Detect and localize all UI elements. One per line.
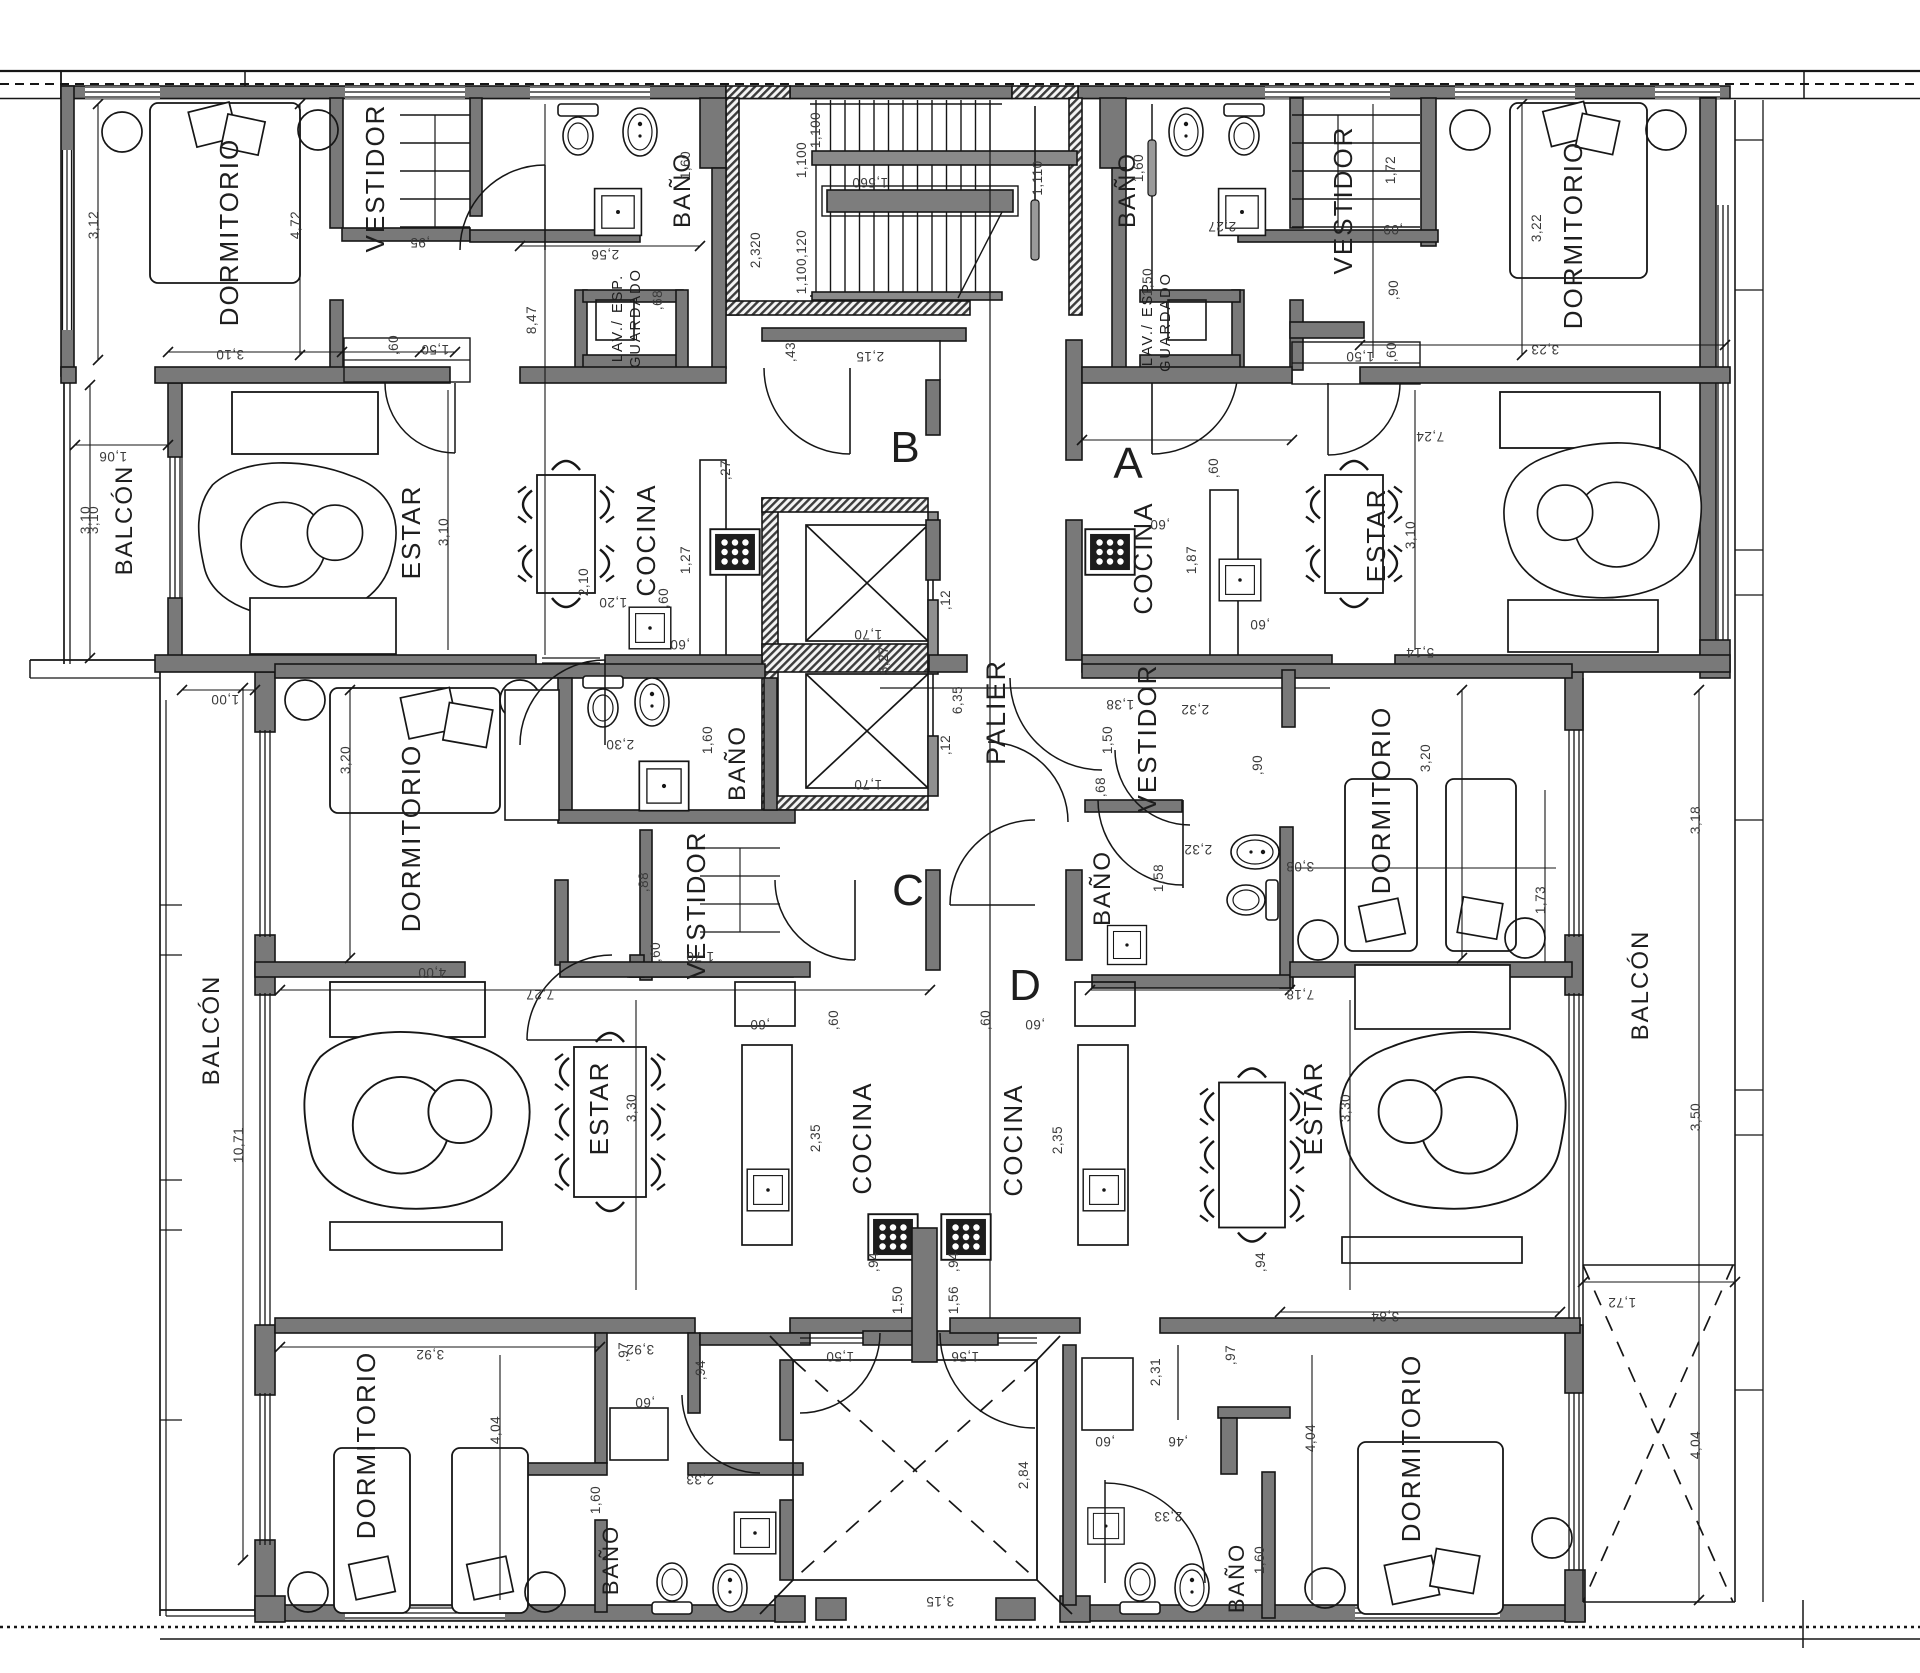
svg-text:,12: ,12 xyxy=(938,590,953,610)
svg-text:BALCÓN: BALCÓN xyxy=(1627,930,1654,1041)
svg-text:VESTIDOR: VESTIDOR xyxy=(1132,664,1162,813)
svg-text:,94: ,94 xyxy=(1253,1252,1268,1272)
svg-text:3,84: 3,84 xyxy=(1371,1309,1399,1324)
svg-text:,94: ,94 xyxy=(946,1252,961,1272)
svg-text:1,20: 1,20 xyxy=(599,595,627,610)
svg-text:1,50: 1,50 xyxy=(421,342,449,357)
svg-text:,97: ,97 xyxy=(616,1342,631,1362)
svg-text:VESTIDOR: VESTIDOR xyxy=(360,104,390,253)
svg-text:,94: ,94 xyxy=(866,1252,881,1272)
svg-text:3,50: 3,50 xyxy=(1688,1103,1703,1131)
svg-text:,60: ,60 xyxy=(1150,517,1170,532)
svg-text:A: A xyxy=(1113,439,1143,488)
svg-text:3,22: 3,22 xyxy=(1529,214,1544,242)
svg-text:ESTAR: ESTAR xyxy=(1298,1061,1328,1156)
svg-text:COCINA: COCINA xyxy=(847,1081,877,1194)
svg-text:,60: ,60 xyxy=(648,942,663,962)
svg-text:,60: ,60 xyxy=(670,637,690,652)
svg-text:1,70: 1,70 xyxy=(854,627,882,642)
svg-text:1,100: 1,100 xyxy=(794,142,809,178)
svg-text:2,30: 2,30 xyxy=(606,737,634,752)
svg-text:COCINA: COCINA xyxy=(998,1083,1028,1196)
svg-text:2,15: 2,15 xyxy=(856,349,884,364)
svg-text:ESTAR: ESTAR xyxy=(584,1061,614,1156)
svg-text:3,10: 3,10 xyxy=(1403,521,1418,549)
svg-text:D: D xyxy=(1009,961,1041,1010)
svg-text:4,04: 4,04 xyxy=(1688,1431,1703,1459)
svg-text:1,73: 1,73 xyxy=(1533,886,1548,914)
svg-text:3,10: 3,10 xyxy=(78,506,93,534)
svg-text:1,60: 1,60 xyxy=(678,151,693,179)
svg-text:,60: ,60 xyxy=(1025,1017,1045,1032)
svg-text:3,30: 3,30 xyxy=(624,1094,639,1122)
svg-text:3,20: 3,20 xyxy=(338,746,353,774)
svg-text:,95: ,95 xyxy=(410,235,430,250)
svg-text:DORMITORIO: DORMITORIO xyxy=(396,744,426,933)
svg-text:,27: ,27 xyxy=(718,460,733,480)
svg-text:LAV./ ESP.: LAV./ ESP. xyxy=(610,274,626,362)
svg-text:1,87: 1,87 xyxy=(1184,546,1199,574)
svg-text:VESTIDOR: VESTIDOR xyxy=(1328,126,1358,275)
svg-text:3,23: 3,23 xyxy=(1531,342,1559,357)
svg-text:,90: ,90 xyxy=(1250,755,1265,775)
svg-text:5,14: 5,14 xyxy=(1406,645,1434,660)
svg-text:6,35: 6,35 xyxy=(950,686,965,714)
svg-text:4,00: 4,00 xyxy=(418,965,446,980)
svg-text:BALCÓN: BALCÓN xyxy=(198,975,225,1086)
svg-text:2,84: 2,84 xyxy=(1016,1461,1031,1489)
svg-text:3,18: 3,18 xyxy=(1688,806,1703,834)
svg-text:1,72: 1,72 xyxy=(1608,1295,1636,1310)
svg-text:8,47: 8,47 xyxy=(524,306,539,334)
svg-text:4,04: 4,04 xyxy=(1303,1424,1318,1452)
svg-text:2,27: 2,27 xyxy=(1208,219,1236,234)
svg-text:,94: ,94 xyxy=(693,1360,708,1380)
svg-text:1,38: 1,38 xyxy=(1106,697,1134,712)
svg-text:1,60: 1,60 xyxy=(588,1486,603,1514)
svg-text:4,72: 4,72 xyxy=(288,211,303,239)
svg-text:,60: ,60 xyxy=(750,1017,770,1032)
svg-text:DORMITORIO: DORMITORIO xyxy=(214,138,244,327)
svg-text:2,33: 2,33 xyxy=(686,1472,714,1487)
svg-text:,60: ,60 xyxy=(656,588,671,608)
svg-text:1,60: 1,60 xyxy=(700,726,715,754)
svg-text:1,72: 1,72 xyxy=(1383,156,1398,184)
svg-text:GUARDADO: GUARDADO xyxy=(1158,272,1174,372)
svg-text:3,15: 3,15 xyxy=(926,1594,954,1609)
svg-text:DORMITORIO: DORMITORIO xyxy=(1366,706,1396,895)
svg-text:2,32: 2,32 xyxy=(1184,842,1212,857)
svg-text:BAÑO: BAÑO xyxy=(1224,1543,1249,1613)
svg-text:1,00: 1,00 xyxy=(211,692,239,707)
svg-text:,68: ,68 xyxy=(1093,777,1108,797)
svg-text:,90: ,90 xyxy=(1386,280,1401,300)
svg-text:B: B xyxy=(890,423,919,472)
svg-text:BAÑO: BAÑO xyxy=(1089,850,1116,926)
svg-text:1,50: 1,50 xyxy=(1346,349,1374,364)
svg-text:1,60: 1,60 xyxy=(1252,1546,1267,1574)
svg-text:,60: ,60 xyxy=(978,1010,993,1030)
svg-text:GUARDADO: GUARDADO xyxy=(628,268,644,368)
svg-text:1,70: 1,70 xyxy=(686,949,714,964)
svg-text:,60: ,60 xyxy=(1384,342,1399,362)
svg-text:3,27: 3,27 xyxy=(876,646,891,674)
svg-text:PALIER: PALIER xyxy=(981,659,1011,765)
svg-text:,60: ,60 xyxy=(635,1395,655,1410)
svg-text:2,31: 2,31 xyxy=(1148,1358,1163,1386)
svg-text:3,10: 3,10 xyxy=(436,518,451,546)
svg-text:1,60: 1,60 xyxy=(1131,154,1146,182)
svg-text:4,04: 4,04 xyxy=(488,1416,503,1444)
svg-text:ESTAR: ESTAR xyxy=(396,485,426,580)
svg-text:1,56: 1,56 xyxy=(946,1286,961,1314)
svg-text:BALCÓN: BALCÓN xyxy=(111,465,138,576)
svg-text:,60: ,60 xyxy=(386,335,401,355)
svg-text:1,70: 1,70 xyxy=(854,777,882,792)
svg-text:DORMITORIO: DORMITORIO xyxy=(1396,1354,1426,1543)
svg-text:,12: ,12 xyxy=(938,735,953,755)
svg-text:ESTAR: ESTAR xyxy=(1361,488,1391,583)
svg-text:,60: ,60 xyxy=(1095,1434,1115,1449)
svg-text:1,110: 1,110 xyxy=(1030,160,1045,195)
svg-text:2,56: 2,56 xyxy=(591,247,619,262)
svg-text:,46: ,46 xyxy=(1168,1434,1188,1449)
svg-text:COCINA: COCINA xyxy=(631,483,661,596)
svg-text:,97: ,97 xyxy=(1223,1345,1238,1365)
svg-text:,43: ,43 xyxy=(783,342,798,362)
svg-text:BAÑO: BAÑO xyxy=(598,1525,623,1595)
svg-text:3,08: 3,08 xyxy=(1286,859,1314,874)
svg-text:,68: ,68 xyxy=(650,290,665,310)
svg-text:3,20: 3,20 xyxy=(1418,744,1433,772)
svg-text:BAÑO: BAÑO xyxy=(724,725,751,801)
svg-text:,88: ,88 xyxy=(636,872,651,892)
svg-text:1,100: 1,100 xyxy=(808,112,823,148)
svg-text:3,12: 3,12 xyxy=(86,211,101,239)
svg-text:,60: ,60 xyxy=(826,1010,841,1030)
svg-text:2,35: 2,35 xyxy=(808,1124,823,1152)
svg-text:2,10: 2,10 xyxy=(576,568,591,596)
svg-text:1,56: 1,56 xyxy=(951,1349,979,1364)
svg-text:2,33: 2,33 xyxy=(1154,1509,1182,1524)
svg-text:1,58: 1,58 xyxy=(1151,864,1166,892)
svg-text:3,30: 3,30 xyxy=(1338,1094,1353,1122)
svg-text:3,92: 3,92 xyxy=(416,1347,444,1362)
svg-text:7,27: 7,27 xyxy=(526,987,554,1002)
svg-text:,60: ,60 xyxy=(1250,617,1270,632)
svg-text:7,24: 7,24 xyxy=(1416,429,1444,444)
svg-text:1,560: 1,560 xyxy=(852,175,888,190)
svg-text:10,71: 10,71 xyxy=(231,1127,246,1163)
svg-text:2,32: 2,32 xyxy=(1181,702,1209,717)
svg-text:1,27: 1,27 xyxy=(678,546,693,574)
svg-text:DORMITORIO: DORMITORIO xyxy=(351,1351,381,1540)
svg-text:1,50: 1,50 xyxy=(1100,726,1115,754)
svg-text:1,50: 1,50 xyxy=(1140,268,1155,296)
svg-text:1,50: 1,50 xyxy=(826,1349,854,1364)
svg-text:1,06: 1,06 xyxy=(99,449,127,464)
svg-text:1,100,120: 1,100,120 xyxy=(794,230,809,295)
svg-text:2,35: 2,35 xyxy=(1050,1126,1065,1154)
svg-text:DORMITORIO: DORMITORIO xyxy=(1558,141,1588,330)
svg-text:,60: ,60 xyxy=(1206,458,1221,478)
svg-text:1,50: 1,50 xyxy=(890,1286,905,1314)
svg-text:2,320: 2,320 xyxy=(748,232,763,268)
svg-text:3,10: 3,10 xyxy=(216,347,244,362)
svg-text:,09: ,09 xyxy=(1383,222,1403,237)
svg-text:7,18: 7,18 xyxy=(1286,987,1314,1002)
svg-text:C: C xyxy=(892,866,924,915)
